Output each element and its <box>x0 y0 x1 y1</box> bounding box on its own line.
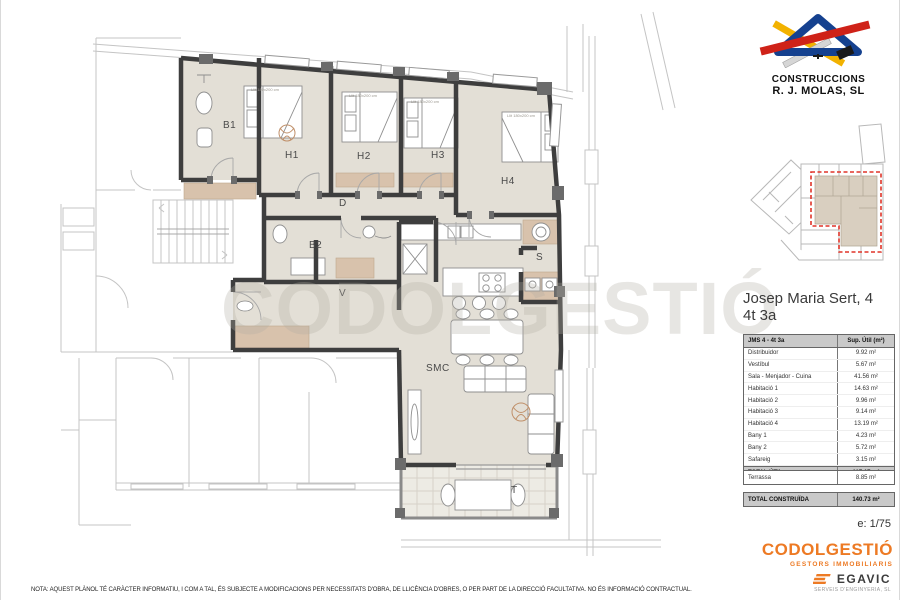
key-plan-drawing <box>741 120 896 285</box>
codolgestio-name: CODOLGESTIÓ <box>736 540 893 560</box>
toilet-b1 <box>197 128 212 147</box>
table-row: Habitació 39.14 m² <box>744 407 894 419</box>
chaise <box>528 394 554 454</box>
egavic-bars-icon <box>813 573 833 585</box>
total-construida-label: TOTAL CONSTRUÏDA <box>744 497 837 503</box>
disclaimer-note: NOTA: AQUEST PLÀNOL TÉ CARÀCTER INFORMAT… <box>31 587 736 593</box>
builder-logo: CONSTRUCCIONS R. J. MOLAS, SL <box>741 10 896 97</box>
table-header-label: JMS 4 - 4t 3a <box>744 338 837 344</box>
room-label-b1: B1 <box>223 120 236 131</box>
toilet-b2 <box>273 225 287 243</box>
room-name: Safareig <box>744 457 837 463</box>
table-row: Habitació 114.63 m² <box>744 383 894 395</box>
builder-name-line1: CONSTRUCCIONS <box>741 74 896 85</box>
stool <box>493 297 506 310</box>
room-name: Sala - Menjador - Cuina <box>744 374 837 380</box>
total-construida-row: TOTAL CONSTRUÏDA140.73 m² <box>743 492 895 507</box>
bed-size-label: Llit 180x200 cm <box>411 100 439 105</box>
bed-h2 <box>342 92 397 142</box>
room-label-h3: H3 <box>431 150 445 161</box>
room-area: 9.96 m² <box>837 395 894 406</box>
room-label-smc: SMC <box>426 363 450 374</box>
key-plan <box>741 120 896 290</box>
room-label-s: S <box>536 252 543 263</box>
bed-h1 <box>244 86 302 138</box>
room-label-h4: H4 <box>501 176 515 187</box>
table-row: Vestíbul5.67 m² <box>744 360 894 372</box>
terrassa-value: 8.85 m² <box>837 471 894 484</box>
room-label-h1: H1 <box>285 150 299 161</box>
shower-figure <box>363 226 375 238</box>
room-area: 4.23 m² <box>837 431 894 442</box>
room-area: 5.67 m² <box>837 360 894 371</box>
room-label-t: T <box>511 485 518 496</box>
egavic-tagline: SERVEIS D'ENGINYERIA, SL <box>813 587 891 593</box>
terrassa-label: Terrassa <box>744 475 837 481</box>
dining-table <box>451 320 523 354</box>
stool <box>453 297 466 310</box>
codolgestio-tagline: GESTORS IMMOBILIARIS <box>736 561 893 568</box>
room-label-v: V <box>339 288 346 299</box>
table-row: Habitació 413.19 m² <box>744 419 894 431</box>
areas-table: JMS 4 - 4t 3a Sup. Útil (m²) Distribuido… <box>743 334 895 480</box>
egavic-name: EGAVIC <box>837 572 891 586</box>
bed-size-label: Llit 180x200 cm <box>507 114 535 119</box>
terrassa-row: Terrassa8.85 m² <box>743 470 895 485</box>
table-header-value: Sup. Útil (m²) <box>837 335 894 347</box>
room-area: 3.15 m² <box>837 454 894 465</box>
bed-size-label: Llit 180x200 cm <box>251 88 279 93</box>
floor-plan: B1 H1 H2 H3 H4 D B2 V S SMC T Llit 180x2… <box>1 0 736 585</box>
room-label-b2: B2 <box>309 240 322 251</box>
bed-size-label: Llit 180x200 cm <box>349 94 377 99</box>
codolgestio-logo: CODOLGESTIÓ GESTORS IMMOBILIARIS <box>736 540 893 568</box>
room-area: 14.63 m² <box>837 383 894 394</box>
title-line2: 4t 3a <box>743 307 873 324</box>
room-label-h2: H2 <box>357 151 371 162</box>
entrance-tag <box>237 301 253 311</box>
table-row: Safareig3.15 m² <box>744 454 894 466</box>
table-row: Distribuidor9.92 m² <box>744 348 894 360</box>
apartment-title: Josep Maria Sert, 4 4t 3a <box>743 290 873 324</box>
room-name: Habitació 1 <box>744 386 837 392</box>
room-area: 41.56 m² <box>837 372 894 383</box>
room-name: Distribuidor <box>744 350 837 356</box>
floor-plan-drawing <box>1 0 736 585</box>
room-area: 9.14 m² <box>837 407 894 418</box>
room-name: Habitació 3 <box>744 409 837 415</box>
terrace-table <box>455 480 511 510</box>
room-name: Vestíbul <box>744 362 837 368</box>
room-area: 9.92 m² <box>837 348 894 359</box>
room-name: Bany 2 <box>744 445 837 451</box>
table-row: Bany 25.72 m² <box>744 442 894 454</box>
sink-b1 <box>196 92 212 114</box>
table-header: JMS 4 - 4t 3a Sup. Útil (m²) <box>744 335 894 348</box>
table-row: Bany 14.23 m² <box>744 431 894 443</box>
room-label-d: D <box>339 198 347 209</box>
table-row: Sala - Menjador - Cuina41.56 m² <box>744 372 894 384</box>
builder-name-line2: R. J. MOLAS, SL <box>741 85 896 97</box>
scale-label: e: 1/75 <box>857 518 891 530</box>
sidebar: CONSTRUCCIONS R. J. MOLAS, SL <box>736 0 900 600</box>
room-name: Habitació 4 <box>744 421 837 427</box>
table-row: Habitació 29.96 m² <box>744 395 894 407</box>
plan-sheet: B1 H1 H2 H3 H4 D B2 V S SMC T Llit 180x2… <box>0 0 900 600</box>
room-name: Bany 1 <box>744 433 837 439</box>
set-square-logo-icon <box>741 10 896 68</box>
egavic-logo: EGAVIC SERVEIS D'ENGINYERIA, SL <box>813 572 891 593</box>
room-area: 5.72 m² <box>837 442 894 453</box>
stool <box>473 297 486 310</box>
room-area: 13.19 m² <box>837 419 894 430</box>
sink-b2 <box>291 258 325 275</box>
title-line1: Josep Maria Sert, 4 <box>743 290 873 307</box>
room-name: Habitació 2 <box>744 398 837 404</box>
bed-h3 <box>404 98 458 148</box>
total-construida-value: 140.73 m² <box>837 493 894 506</box>
